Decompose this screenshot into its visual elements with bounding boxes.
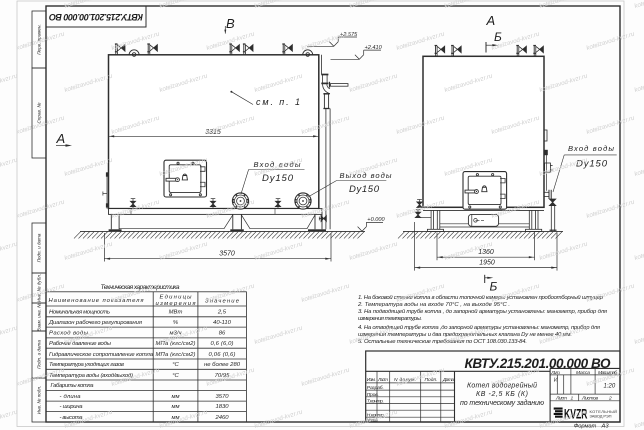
svg-text:0,6 (6,0): 0,6 (6,0) — [211, 341, 234, 347]
svg-text:1950: 1950 — [479, 260, 495, 267]
svg-text:Dy150: Dy150 — [349, 184, 380, 195]
svg-text:измерения: измерения — [156, 301, 197, 307]
svg-text:40-110: 40-110 — [213, 320, 232, 326]
svg-text:2: 2 — [608, 396, 612, 402]
svg-text:Т.контр.: Т.контр. — [367, 399, 384, 405]
svg-text:А: А — [486, 13, 496, 28]
svg-text:°С: °С — [172, 373, 179, 379]
svg-text:Габариты котла: Габариты котла — [51, 383, 95, 389]
svg-text:Подп. и дата: Подп. и дата — [37, 233, 42, 262]
svg-text:Лист: Лист — [555, 396, 567, 402]
svg-text:%: % — [173, 320, 178, 326]
svg-text:Лист: Лист — [377, 377, 388, 383]
svg-text:2460: 2460 — [214, 415, 229, 421]
svg-text:3570: 3570 — [215, 394, 229, 400]
svg-text:Справ. №: Справ. № — [37, 103, 42, 124]
svg-text:3570: 3570 — [219, 250, 235, 257]
svg-text:Изм.: Изм. — [367, 377, 376, 383]
svg-text:Единицы: Единицы — [160, 295, 193, 301]
svg-text:Номинальная мощность: Номинальная мощность — [49, 310, 110, 316]
svg-text:не более 280: не более 280 — [204, 362, 241, 368]
svg-text:+2.410: +2.410 — [365, 45, 383, 51]
svg-text:по техническому заданию: по техническому заданию — [460, 399, 545, 407]
svg-text:Инв. № подл.: Инв. № подл. — [37, 386, 42, 415]
svg-text:0,06 (0,6): 0,06 (0,6) — [209, 352, 236, 358]
svg-text:КВТУ.215.201.00.000 ВО: КВТУ.215.201.00.000 ВО — [49, 12, 143, 22]
svg-text:°С: °С — [172, 362, 179, 368]
svg-text:1830: 1830 — [215, 404, 229, 410]
svg-text:И: И — [554, 377, 558, 383]
svg-text:мм: мм — [171, 394, 179, 400]
svg-text:- ширина: - ширина — [60, 404, 84, 410]
svg-text:В: В — [226, 16, 235, 31]
svg-text:- длина: - длина — [60, 394, 82, 400]
svg-text:Взам. инв. №: Взам. инв. № — [37, 303, 42, 331]
svg-text:Подп. и дата: Подп. и дата — [37, 340, 42, 369]
svg-text:Дата: Дата — [442, 377, 454, 383]
svg-text:1: 1 — [571, 396, 574, 402]
svg-text:Dy150: Dy150 — [262, 173, 294, 184]
svg-text:3. На подводящей трубе котла: 3. На подводящей трубе котла , до запорн… — [358, 308, 608, 315]
svg-text:Рабочее давление воды: Рабочее давление воды — [49, 341, 112, 347]
svg-text:5. Остальные технические треб: 5. Остальные технические требования по О… — [358, 339, 527, 345]
svg-text:Формат: Формат — [574, 423, 597, 429]
svg-text:Б: Б — [490, 280, 498, 294]
svg-text:МПа (кгс/см2): МПа (кгс/см2) — [156, 352, 196, 358]
svg-text:измерения температуры.: измерения температуры. — [358, 316, 422, 322]
svg-text:Разраб.: Разраб. — [367, 385, 384, 391]
svg-text:мм: мм — [171, 404, 179, 410]
svg-text:Диапазон рабочего регулировани: Диапазон рабочего регулирования — [48, 320, 143, 326]
svg-text:Пров.: Пров. — [367, 392, 379, 398]
svg-text:Лит.: Лит. — [550, 370, 560, 376]
svg-text:86: 86 — [219, 331, 226, 337]
svg-text:2. Температура воды на входе: 2. Температура воды на входе 70°С , на в… — [357, 302, 510, 308]
svg-text:Вход воды: Вход воды — [568, 144, 614, 153]
svg-text:Масса: Масса — [576, 370, 590, 376]
svg-text:МВт: МВт — [169, 310, 183, 316]
svg-text:А3: А3 — [601, 423, 610, 429]
svg-text:2,5: 2,5 — [217, 310, 227, 316]
svg-text:Гидравлическое сопротивление к: Гидравлическое сопротивление котла — [49, 352, 154, 358]
svg-text:Листов: Листов — [581, 396, 598, 402]
svg-text:ЗАВОД РЭП: ЗАВОД РЭП — [590, 414, 612, 419]
svg-text:+0.000: +0.000 — [367, 217, 385, 223]
svg-text:КВ -2,5 КБ (К): КВ -2,5 КБ (К) — [476, 391, 528, 398]
svg-text:Наименование показателя: Наименование показателя — [49, 298, 145, 304]
svg-text:А: А — [56, 131, 66, 146]
svg-text:Инв. № дубл.: Инв. № дубл. — [37, 274, 42, 302]
svg-text:1:20: 1:20 — [604, 383, 616, 389]
